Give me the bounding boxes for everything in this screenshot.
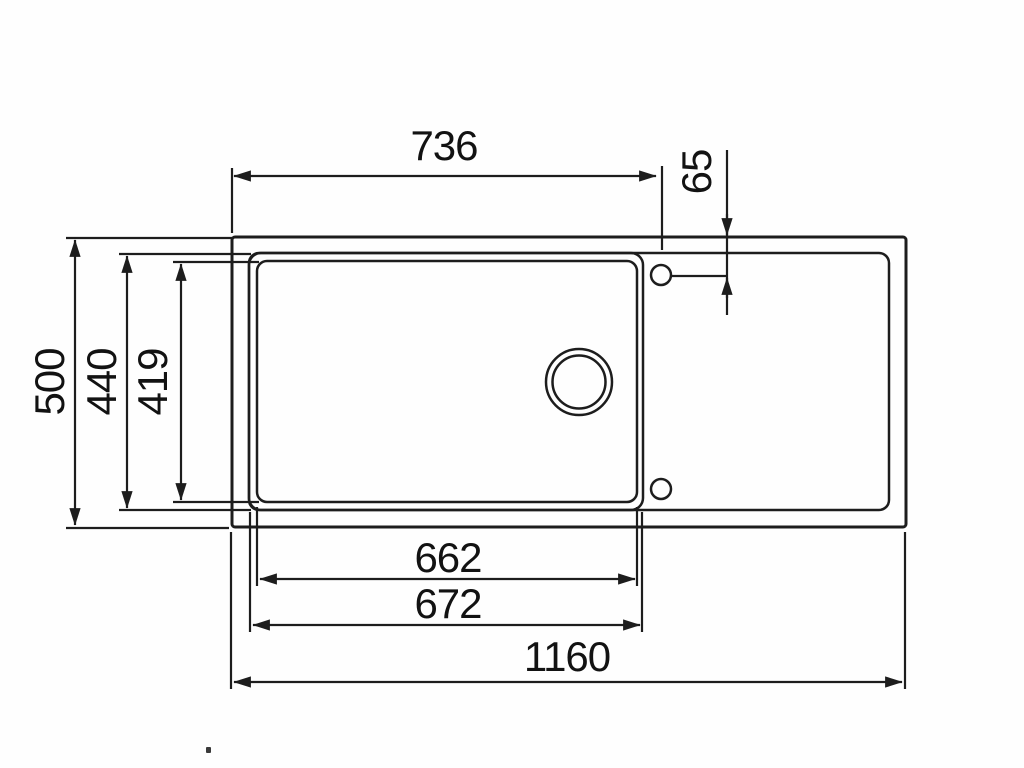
faucet-hole-bottom [651,479,671,499]
dimension-419 [173,262,259,502]
dim-419-label: 419 [129,348,176,415]
sink-outline-group [232,237,906,527]
dim-672-label: 672 [414,580,481,627]
dimension-labels-group: 736 65 500 440 419 662 672 1160 [26,122,720,680]
dimension-lines-group [66,150,905,689]
sink-rim-edge [249,253,889,510]
dim-65-label: 65 [673,150,720,195]
dim-500-label: 500 [26,348,73,415]
print-speck [206,747,211,753]
dim-662-label: 662 [414,534,481,581]
bowl-outer-edge [249,253,643,510]
drawing-canvas: 736 65 500 440 419 662 672 1160 [0,0,1024,768]
dim-440-label: 440 [78,348,125,415]
drain-hole-inner-circle [553,356,606,409]
faucet-hole-top [651,265,671,285]
bowl-inner-edge [257,261,637,502]
sink-outer-edge [232,237,906,527]
dim-1160-label: 1160 [524,633,610,680]
dim-736-label: 736 [410,122,477,169]
sink-technical-drawing: 736 65 500 440 419 662 672 1160 [0,0,1024,768]
drain-hole-outer-circle [546,349,612,415]
